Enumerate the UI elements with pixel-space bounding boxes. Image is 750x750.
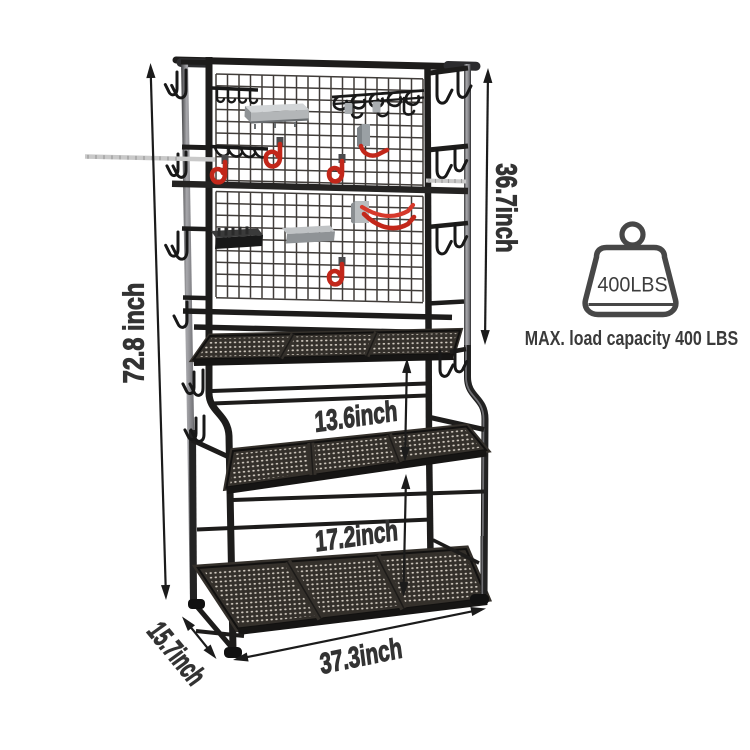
svg-text:72.8 inch: 72.8 inch xyxy=(117,283,150,383)
svg-text:36.7inch: 36.7inch xyxy=(490,163,521,252)
svg-text:MAX. load capacity 400 LBS: MAX. load capacity 400 LBS xyxy=(525,327,738,349)
svg-text:400LBS: 400LBS xyxy=(597,273,667,297)
